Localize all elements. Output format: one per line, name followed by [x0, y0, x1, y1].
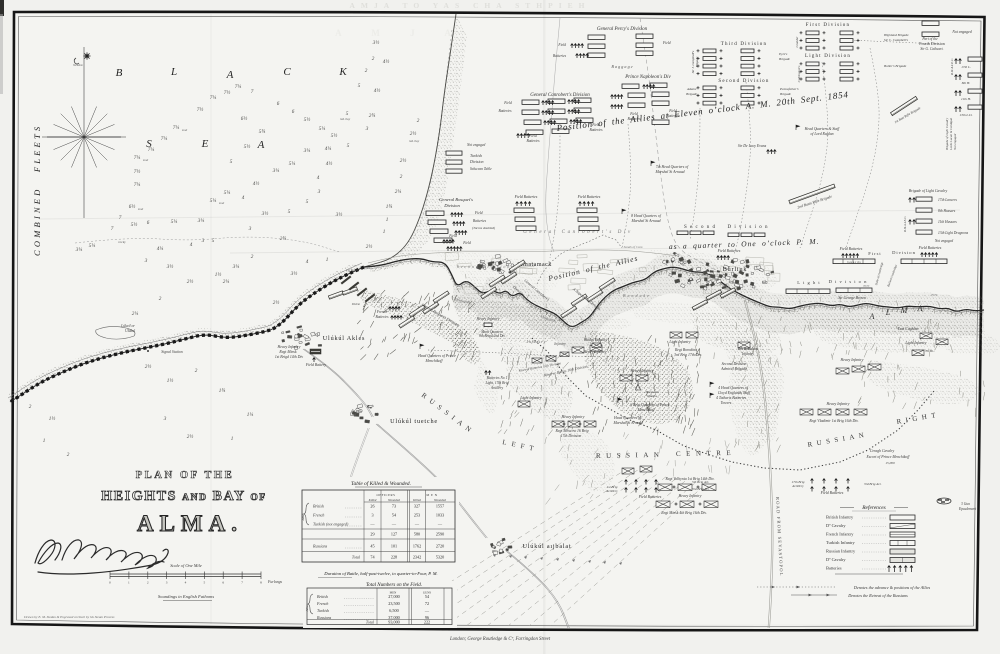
- svg-text:Artillery: Artillery: [791, 484, 804, 488]
- svg-text:PLAN OF THE: PLAN OF THE: [136, 470, 235, 481]
- svg-text:Killed: Killed: [412, 498, 421, 502]
- svg-text:K: K: [338, 66, 347, 78]
- svg-text:A: A: [257, 139, 265, 151]
- svg-text:Furlongs: Furlongs: [267, 580, 282, 584]
- svg-text:6 Regt Quarters of Prince: 6 Regt Quarters of Prince: [630, 403, 670, 407]
- svg-text:Killed: Killed: [368, 498, 377, 502]
- svg-text:2: 2: [29, 404, 32, 410]
- svg-text:General Percy's Division: General Percy's Division: [597, 27, 648, 32]
- svg-text:127: 127: [391, 532, 397, 537]
- svg-text:British: British: [313, 504, 324, 509]
- svg-text:5½: 5½: [304, 116, 311, 123]
- svg-text:3: 3: [371, 513, 373, 518]
- svg-text:Adams': Adams': [686, 87, 697, 91]
- svg-text:228: 228: [391, 555, 397, 560]
- svg-text:Admiral Brigade: Admiral Brigade: [720, 367, 747, 371]
- svg-text:2¼: 2¼: [223, 279, 230, 285]
- svg-text:mud: mud: [182, 128, 188, 132]
- svg-text:Scale of One Mile: Scale of One Mile: [170, 563, 202, 568]
- svg-text:C: C: [283, 66, 291, 78]
- svg-text:1: 1: [231, 436, 234, 442]
- svg-text:5: 5: [230, 159, 233, 165]
- svg-text:London; George Routledge & Cº: London; George Routledge & Cº, Farringdo…: [449, 636, 551, 642]
- svg-text:A: A: [226, 69, 234, 81]
- svg-text:11th H.: 11th H.: [961, 97, 971, 101]
- svg-text:Field: Field: [462, 241, 471, 245]
- svg-text:4 Tatharis Batteries: 4 Tatharis Batteries: [716, 396, 747, 400]
- svg-text:mud: mud: [219, 201, 225, 205]
- svg-text:British Infantry: British Infantry: [826, 515, 854, 520]
- svg-text:Ulúkúl Akles: Ulúkúl Akles: [323, 335, 365, 342]
- svg-text:Pennefather's: Pennefather's: [779, 87, 799, 91]
- svg-text:Batteries No 1: Batteries No 1: [487, 376, 508, 380]
- svg-text:5½: 5½: [244, 143, 251, 150]
- svg-text:Turkish Infantry: Turkish Infantry: [826, 540, 856, 545]
- svg-text:Denotes the Retreat of the: Denotes the Retreat of the Russians: [847, 593, 908, 598]
- svg-text:Creagh Cavalry: Creagh Cavalry: [870, 449, 895, 453]
- svg-text:R.H.A.I.E.C.: R.H.A.I.E.C.: [903, 216, 907, 233]
- svg-text:5: 5: [358, 83, 361, 89]
- svg-text:1¾: 1¾: [219, 388, 226, 394]
- svg-text:AMJA TO YAS CHA STHPIEH: AMJA TO YAS CHA STHPIEH: [350, 1, 591, 10]
- svg-text:Light Division: Light Division: [805, 54, 851, 59]
- svg-text:2½: 2½: [400, 157, 407, 164]
- svg-text:17th Division: 17th Division: [561, 434, 582, 438]
- svg-text:Field: Field: [503, 101, 512, 105]
- svg-text:3: 3: [164, 416, 167, 422]
- svg-text:M E N: M E N: [426, 493, 437, 497]
- svg-text:17th Lancers: 17th Lancers: [938, 198, 957, 202]
- svg-text:Banduke: Banduke: [623, 293, 651, 298]
- svg-text:First: First: [868, 251, 881, 256]
- svg-text:Not engaged: Not engaged: [466, 143, 485, 147]
- svg-text:4: 4: [242, 194, 245, 201]
- svg-text:Batteries: Batteries: [826, 566, 842, 571]
- svg-text:French: French: [376, 310, 387, 314]
- svg-text:Turkish: Turkish: [317, 608, 329, 613]
- svg-text:3: 3: [166, 581, 168, 585]
- svg-text:COMBINED FLEETS: COMBINED FLEETS: [32, 124, 42, 256]
- svg-text:1st Turkd: 1st Turkd: [346, 268, 358, 272]
- svg-text:Brigade of Light Cavalry: Brigade of Light Cavalry: [909, 189, 948, 193]
- svg-text:0: 0: [109, 581, 111, 585]
- svg-text:Not engaged: Not engaged: [953, 133, 957, 151]
- svg-text:7¼: 7¼: [173, 125, 180, 131]
- svg-text:2½: 2½: [366, 243, 373, 250]
- svg-text:Brigade: Brigade: [779, 57, 790, 61]
- svg-text:1: 1: [383, 229, 386, 235]
- svg-text:Soundings in English Fathom: Soundings in English Fathoms: [158, 594, 214, 599]
- svg-text:D i v i s i o n: D i v i s i o n: [829, 279, 868, 284]
- svg-text:red clay: red clay: [409, 139, 420, 143]
- svg-text:13th L.D.: 13th L.D.: [960, 113, 973, 117]
- svg-text:Batteries: Batteries: [527, 139, 541, 143]
- svg-text:17th L.: 17th L.: [961, 65, 971, 69]
- svg-text:Brigade: Brigade: [686, 92, 697, 96]
- svg-text:4½: 4½: [253, 180, 260, 187]
- svg-text:E: E: [201, 138, 209, 150]
- svg-text:327: 327: [414, 504, 420, 509]
- svg-text:29: 29: [370, 532, 374, 537]
- svg-text:7th Head Quarters of: 7th Head Quarters of: [656, 165, 690, 169]
- svg-text:Drawn by E. M. Stedan & Engrav: Drawn by E. M. Stedan & Engraved on Stee…: [23, 615, 115, 619]
- svg-text:2¼: 2¼: [132, 311, 139, 317]
- svg-text:3: 3: [318, 189, 321, 195]
- svg-text:7979: 7979: [931, 293, 938, 297]
- svg-text:Field Batteries: Field Batteries: [717, 249, 741, 253]
- svg-text:3rd Brig Art.: 3rd Brig Art.: [692, 487, 710, 491]
- svg-text:Batteries: Batteries: [553, 54, 567, 58]
- svg-text:(Turcos doubled): (Turcos doubled): [472, 226, 496, 230]
- svg-text:2: 2: [372, 56, 375, 62]
- svg-text:1½: 1½: [167, 377, 174, 384]
- svg-text:6½: 6½: [241, 115, 248, 122]
- svg-text:Table of Killed & Wounded.: Table of Killed & Wounded.: [351, 480, 411, 487]
- svg-text:7¼: 7¼: [148, 147, 155, 153]
- svg-text:2590: 2590: [436, 532, 444, 537]
- svg-text:Divisn: Divisn: [351, 302, 361, 306]
- svg-text:Wounded: Wounded: [388, 498, 400, 502]
- svg-text:8 Head Quarters of: 8 Head Quarters of: [631, 214, 662, 218]
- svg-text:I n f a n t r y: I n f a n t r y: [526, 340, 546, 344]
- svg-text:2: 2: [67, 452, 70, 458]
- svg-text:3: 3: [366, 126, 369, 132]
- svg-text:Wounded: Wounded: [434, 498, 446, 502]
- svg-text:Field: Field: [528, 134, 537, 138]
- svg-text:Menchikoff: Menchikoff: [636, 408, 655, 412]
- svg-text:7¼: 7¼: [134, 182, 141, 188]
- svg-text:—: —: [369, 522, 375, 527]
- svg-text:Third Division: Third Division: [721, 42, 767, 47]
- svg-text:1: 1: [43, 438, 46, 444]
- svg-text:CENTRE: CENTRE: [676, 449, 736, 458]
- svg-text:Marshal St Arnaud: Marshal St Arnaud: [630, 219, 660, 223]
- svg-text:5: 5: [306, 199, 309, 205]
- svg-text:7½: 7½: [224, 89, 231, 96]
- svg-text:Regt Vladimir 1st Brig 16th Di: Regt Vladimir 1st Brig 16th Div.: [808, 419, 858, 423]
- svg-text:5¼: 5¼: [210, 198, 217, 204]
- svg-text:Field: Field: [557, 43, 566, 47]
- svg-text:Russian Infantry: Russian Infantry: [826, 549, 856, 554]
- svg-text:2½: 2½: [273, 299, 280, 306]
- svg-text:1½: 1½: [215, 271, 222, 278]
- svg-text:Light Infantry: Light Infantry: [519, 396, 542, 400]
- svg-text:Batteries: Batteries: [473, 219, 487, 223]
- svg-text:Field Battery: Field Battery: [305, 363, 326, 367]
- svg-text:2¾: 2¾: [280, 236, 287, 242]
- svg-text:Brigade: Brigade: [695, 56, 699, 67]
- svg-text:Field Batteries: Field Batteries: [577, 195, 601, 199]
- svg-text:A: A: [917, 304, 923, 313]
- svg-text:8th H.: 8th H.: [962, 81, 971, 85]
- svg-text:2: 2: [147, 581, 149, 585]
- svg-text:Field Batteries: Field Batteries: [820, 491, 844, 495]
- svg-text:Heavy Infantry: Heavy Infantry: [561, 415, 585, 419]
- svg-text:Regt Borodino: Regt Borodino: [674, 348, 697, 352]
- svg-text:Ulúkúl tuetche: Ulúkúl tuetche: [390, 418, 438, 425]
- svg-text:6: 6: [222, 581, 224, 585]
- svg-text:4¼: 4¼: [325, 145, 332, 152]
- svg-text:Regt Minsk 4th Brig 16th Div.: Regt Minsk 4th Brig 16th Div.: [660, 511, 707, 515]
- svg-text:5¼: 5¼: [89, 243, 96, 249]
- svg-text:First Division: First Division: [806, 23, 850, 28]
- svg-text:Not engaged: Not engaged: [951, 30, 971, 34]
- svg-text:3¼: 3¼: [198, 218, 205, 224]
- svg-text:5¾: 5¾: [259, 129, 266, 135]
- svg-text:Total Numbers on the Field: Total Numbers on the Field.: [366, 583, 422, 588]
- svg-text:5: 5: [204, 581, 206, 585]
- svg-text:7¼: 7¼: [235, 84, 242, 90]
- svg-text:L i g h t: L i g h t: [797, 280, 820, 285]
- svg-text:7: 7: [111, 226, 114, 232]
- svg-text:ALMA.: ALMA.: [137, 511, 243, 536]
- svg-text:Heavy Infantry: Heavy Infantry: [583, 350, 607, 354]
- svg-text:Buller's Brigade: Buller's Brigade: [884, 64, 907, 68]
- svg-text:Heavy Infantry: Heavy Infantry: [678, 494, 702, 498]
- svg-text:5320: 5320: [436, 555, 444, 560]
- svg-text:253: 253: [414, 513, 420, 518]
- svg-text:B: B: [116, 67, 123, 79]
- svg-text:3¼: 3¼: [233, 264, 240, 270]
- svg-text:3: 3: [202, 238, 205, 244]
- svg-text:2¾: 2¾: [369, 113, 376, 119]
- svg-text:3½: 3½: [291, 270, 298, 277]
- svg-text:3½: 3½: [373, 39, 380, 46]
- svg-text:7½: 7½: [134, 168, 141, 175]
- svg-text:2: 2: [251, 254, 254, 260]
- svg-text:Heavy Infantry: Heavy Infantry: [476, 317, 500, 321]
- svg-text:—: —: [424, 608, 430, 613]
- svg-text:2: 2: [400, 174, 403, 180]
- svg-text:3rd Brig Art.: 3rd Brig Art.: [864, 482, 882, 486]
- svg-text:1¼: 1¼: [247, 412, 254, 418]
- svg-text:Field Batteries: Field Batteries: [918, 246, 942, 250]
- svg-text:Turkish: Turkish: [470, 153, 482, 158]
- svg-text:4: 4: [317, 174, 320, 181]
- svg-text:Allies: Allies: [301, 513, 305, 522]
- svg-text:5¼: 5¼: [319, 126, 326, 132]
- svg-text:Marshal St Arnaud: Marshal St Arnaud: [654, 170, 684, 174]
- svg-text:45: 45: [370, 544, 374, 549]
- svg-text:B a g g a g e: B a g g a g e: [611, 64, 632, 69]
- svg-text:Artillery: Artillery: [490, 386, 504, 390]
- svg-text:Batteries: Batteries: [376, 315, 390, 319]
- svg-text:Highland Brigade: Highland Brigade: [883, 33, 909, 37]
- svg-text:Menchikoff: Menchikoff: [424, 359, 443, 363]
- svg-text:2½: 2½: [187, 433, 194, 440]
- svg-text:G u a r d s: G u a r d s: [847, 260, 861, 264]
- svg-text:Towers: Towers: [721, 401, 732, 405]
- svg-text:L: L: [885, 308, 891, 317]
- svg-text:Dº Cavalry: Dº Cavalry: [826, 557, 846, 562]
- svg-text:French Infantry: French Infantry: [826, 532, 854, 537]
- svg-text:Light Infantry: Light Infantry: [668, 340, 691, 344]
- svg-text:72: 72: [425, 601, 429, 606]
- svg-text:1¾: 1¾: [386, 204, 393, 210]
- svg-text:1762: 1762: [413, 544, 421, 549]
- svg-text:2½: 2½: [410, 130, 417, 137]
- svg-text:mud: mud: [138, 207, 144, 211]
- svg-text:Selucean Table: Selucean Table: [470, 167, 492, 171]
- svg-text:7¼: 7¼: [134, 155, 141, 161]
- svg-text:Sir G. Cathcart.: Sir G. Cathcart.: [920, 47, 943, 51]
- svg-text:Station: Station: [647, 394, 657, 398]
- svg-text:rocky: rocky: [118, 240, 126, 244]
- svg-text:Head Quarters & Staff: Head Quarters & Staff: [804, 127, 841, 131]
- svg-text:Head Quarters M.: Head Quarters M.: [613, 416, 642, 420]
- svg-text:4: 4: [190, 241, 193, 248]
- svg-text:General Canrobert's Division: General Canrobert's Division: [530, 93, 590, 98]
- svg-text:5¼: 5¼: [171, 219, 178, 225]
- svg-text:1033: 1033: [436, 513, 444, 518]
- svg-text:5¼: 5¼: [224, 190, 231, 196]
- svg-text:1st Brigd 14th Div: 1st Brigd 14th Div: [275, 355, 303, 359]
- svg-text:R.H.A.I.E.C.: R.H.A.I.E.C.: [950, 58, 954, 76]
- svg-text:3¼: 3¼: [76, 247, 83, 253]
- svg-text:Second Division: Second Division: [457, 264, 511, 269]
- svg-text:Field: Field: [662, 41, 671, 45]
- svg-text:L: L: [170, 66, 177, 78]
- svg-text:Total: Total: [352, 555, 361, 560]
- svg-text:Sir George Brown: Sir George Brown: [838, 296, 866, 300]
- svg-text:Division: Division: [443, 203, 460, 208]
- svg-text:References: References: [861, 504, 885, 511]
- svg-text:mud: mud: [143, 158, 149, 162]
- svg-text:Turkish (not engaged): Turkish (not engaged): [313, 522, 349, 527]
- svg-text:Field Batteries: Field Batteries: [514, 195, 538, 199]
- svg-text:Lloyd Englands Staff: Lloyd Englands Staff: [717, 391, 751, 395]
- svg-text:7¼: 7¼: [161, 136, 168, 142]
- svg-text:RUSSIAN: RUSSIAN: [596, 451, 665, 460]
- svg-text:5: 5: [288, 209, 291, 215]
- svg-text:Heavy Infantry: Heavy Infantry: [826, 402, 850, 406]
- svg-text:Dº Cavalry: Dº Cavalry: [826, 523, 846, 528]
- svg-text:3: 3: [249, 226, 252, 232]
- svg-text:Batteries: Batteries: [499, 109, 513, 113]
- svg-text:Denotes the advance & posi: Denotes the advance & positions of the A…: [853, 585, 931, 590]
- svg-text:Ulukul: Ulukul: [125, 329, 135, 333]
- svg-text:Heavy Infantry: Heavy Infantry: [277, 345, 301, 349]
- svg-text:7: 7: [241, 581, 243, 585]
- svg-text:6: 6: [292, 109, 295, 115]
- svg-text:2: 2: [195, 368, 198, 374]
- svg-text:of Lord Raglan: of Lord Raglan: [810, 132, 833, 136]
- svg-text:Allies: Allies: [305, 604, 309, 613]
- svg-text:2720: 2720: [436, 544, 444, 549]
- svg-text:7¼: 7¼: [210, 95, 217, 101]
- svg-text:1: 1: [326, 257, 329, 263]
- svg-text:3¼: 3¼: [304, 148, 311, 154]
- svg-text:Signal Station: Signal Station: [161, 350, 183, 354]
- svg-text:General Canrobert's Div: General Canrobert's Div: [523, 230, 633, 235]
- svg-text:S e c o n d: S e c o n d: [684, 225, 716, 230]
- svg-text:3½: 3½: [262, 210, 269, 217]
- svg-text:Not engaged: Not engaged: [934, 239, 953, 243]
- svg-text:Sir C. Campbell's: Sir C. Campbell's: [884, 38, 909, 42]
- svg-text:M: M: [900, 306, 909, 315]
- svg-text:Marshal St Arnaud: Marshal St Arnaud: [612, 421, 642, 425]
- svg-text:East Caghlan: East Caghlan: [897, 327, 919, 331]
- svg-text:Division: Division: [892, 250, 916, 255]
- svg-text:Infantry: Infantry: [553, 342, 566, 346]
- svg-text:5¼: 5¼: [289, 161, 296, 167]
- svg-text:2342: 2342: [413, 555, 421, 560]
- svg-text:3½: 3½: [167, 263, 174, 270]
- svg-text:1½: 1½: [49, 415, 56, 422]
- svg-text:2½: 2½: [145, 363, 152, 370]
- svg-text:General Bosquet's: General Bosquet's: [439, 197, 473, 202]
- svg-text:Regt Moscow 16 Brig: Regt Moscow 16 Brig: [554, 429, 588, 433]
- svg-text:6½: 6½: [129, 203, 136, 210]
- svg-text:3: 3: [145, 258, 148, 264]
- svg-text:Field: Field: [448, 234, 457, 238]
- svg-text:4: 4: [185, 581, 187, 585]
- svg-text:4: 4: [306, 258, 309, 265]
- svg-text:1: 1: [386, 217, 389, 223]
- svg-text:1: 1: [128, 581, 130, 585]
- svg-text:Sir De Lacy Evans: Sir De Lacy Evans: [738, 144, 767, 148]
- svg-text:Total: Total: [366, 620, 375, 625]
- svg-text:4½: 4½: [383, 58, 390, 65]
- svg-text:2½: 2½: [187, 278, 194, 285]
- svg-text:Head Quarters of Prince: Head Quarters of Prince: [417, 354, 456, 358]
- svg-text:6: 6: [147, 220, 150, 226]
- svg-text:7½: 7½: [197, 106, 204, 113]
- svg-text:11th Hussars: 11th Hussars: [938, 220, 957, 224]
- svg-text:9th Brigd 2nd Div: 9th Brigd 2nd Div: [479, 334, 505, 338]
- svg-text:8: 8: [260, 581, 262, 585]
- svg-text:5th Brig Art.: 5th Brig Art.: [692, 480, 709, 484]
- svg-text:Russians: Russians: [312, 544, 328, 549]
- svg-text:Infantry: Infantry: [741, 352, 755, 356]
- svg-text:6th Battalion: 6th Battalion: [738, 347, 758, 351]
- svg-text:Variation: Variation: [73, 64, 83, 67]
- svg-text:4½: 4½: [374, 87, 381, 94]
- svg-text:—: —: [391, 522, 397, 527]
- svg-text:A: A: [869, 312, 875, 321]
- svg-text:26: 26: [370, 504, 374, 509]
- svg-text:2¼: 2¼: [395, 189, 402, 195]
- svg-text:2: 2: [365, 68, 368, 74]
- svg-text:Escort of Prince Menchikoff: Escort of Prince Menchikoff: [866, 455, 911, 459]
- svg-text:1557: 1557: [436, 504, 444, 509]
- svg-text:Epaulement: Epaulement: [958, 507, 977, 511]
- svg-text:Fourth Division: Fourth Division: [919, 41, 944, 46]
- svg-text:Artillery: Artillery: [605, 489, 618, 493]
- svg-text:A M J A: A M J A: [335, 28, 465, 38]
- svg-text:580: 580: [414, 532, 420, 537]
- svg-text:5½: 5½: [131, 221, 138, 228]
- svg-text:Field Batteries: Field Batteries: [638, 495, 662, 499]
- svg-text:Division: Division: [469, 159, 484, 164]
- svg-text:Regt Minsk: Regt Minsk: [278, 350, 297, 354]
- svg-text:6: 6: [277, 101, 280, 107]
- svg-text:Bûrliuk: Bûrliuk: [723, 266, 748, 273]
- svg-text:French: French: [312, 513, 324, 518]
- svg-text:Light Infantry: Light Infantry: [904, 341, 927, 345]
- svg-text:3½: 3½: [336, 211, 343, 218]
- svg-text:red clay: red clay: [340, 117, 351, 121]
- svg-text:OFFICERS: OFFICERS: [377, 493, 396, 497]
- svg-text:Lükeil or: Lükeil or: [120, 324, 135, 328]
- svg-text:222: 222: [424, 620, 430, 625]
- svg-text:7070: 7070: [863, 284, 870, 288]
- svg-text:Grander: Grander: [795, 36, 799, 48]
- svg-text:D i v i s i o n: D i v i s i o n: [728, 225, 769, 230]
- svg-text:13th Light Dragoons: 13th Light Dragoons: [938, 231, 969, 235]
- svg-text:101: 101: [391, 544, 397, 549]
- svg-text:Heavy Infantry: Heavy Infantry: [840, 358, 864, 362]
